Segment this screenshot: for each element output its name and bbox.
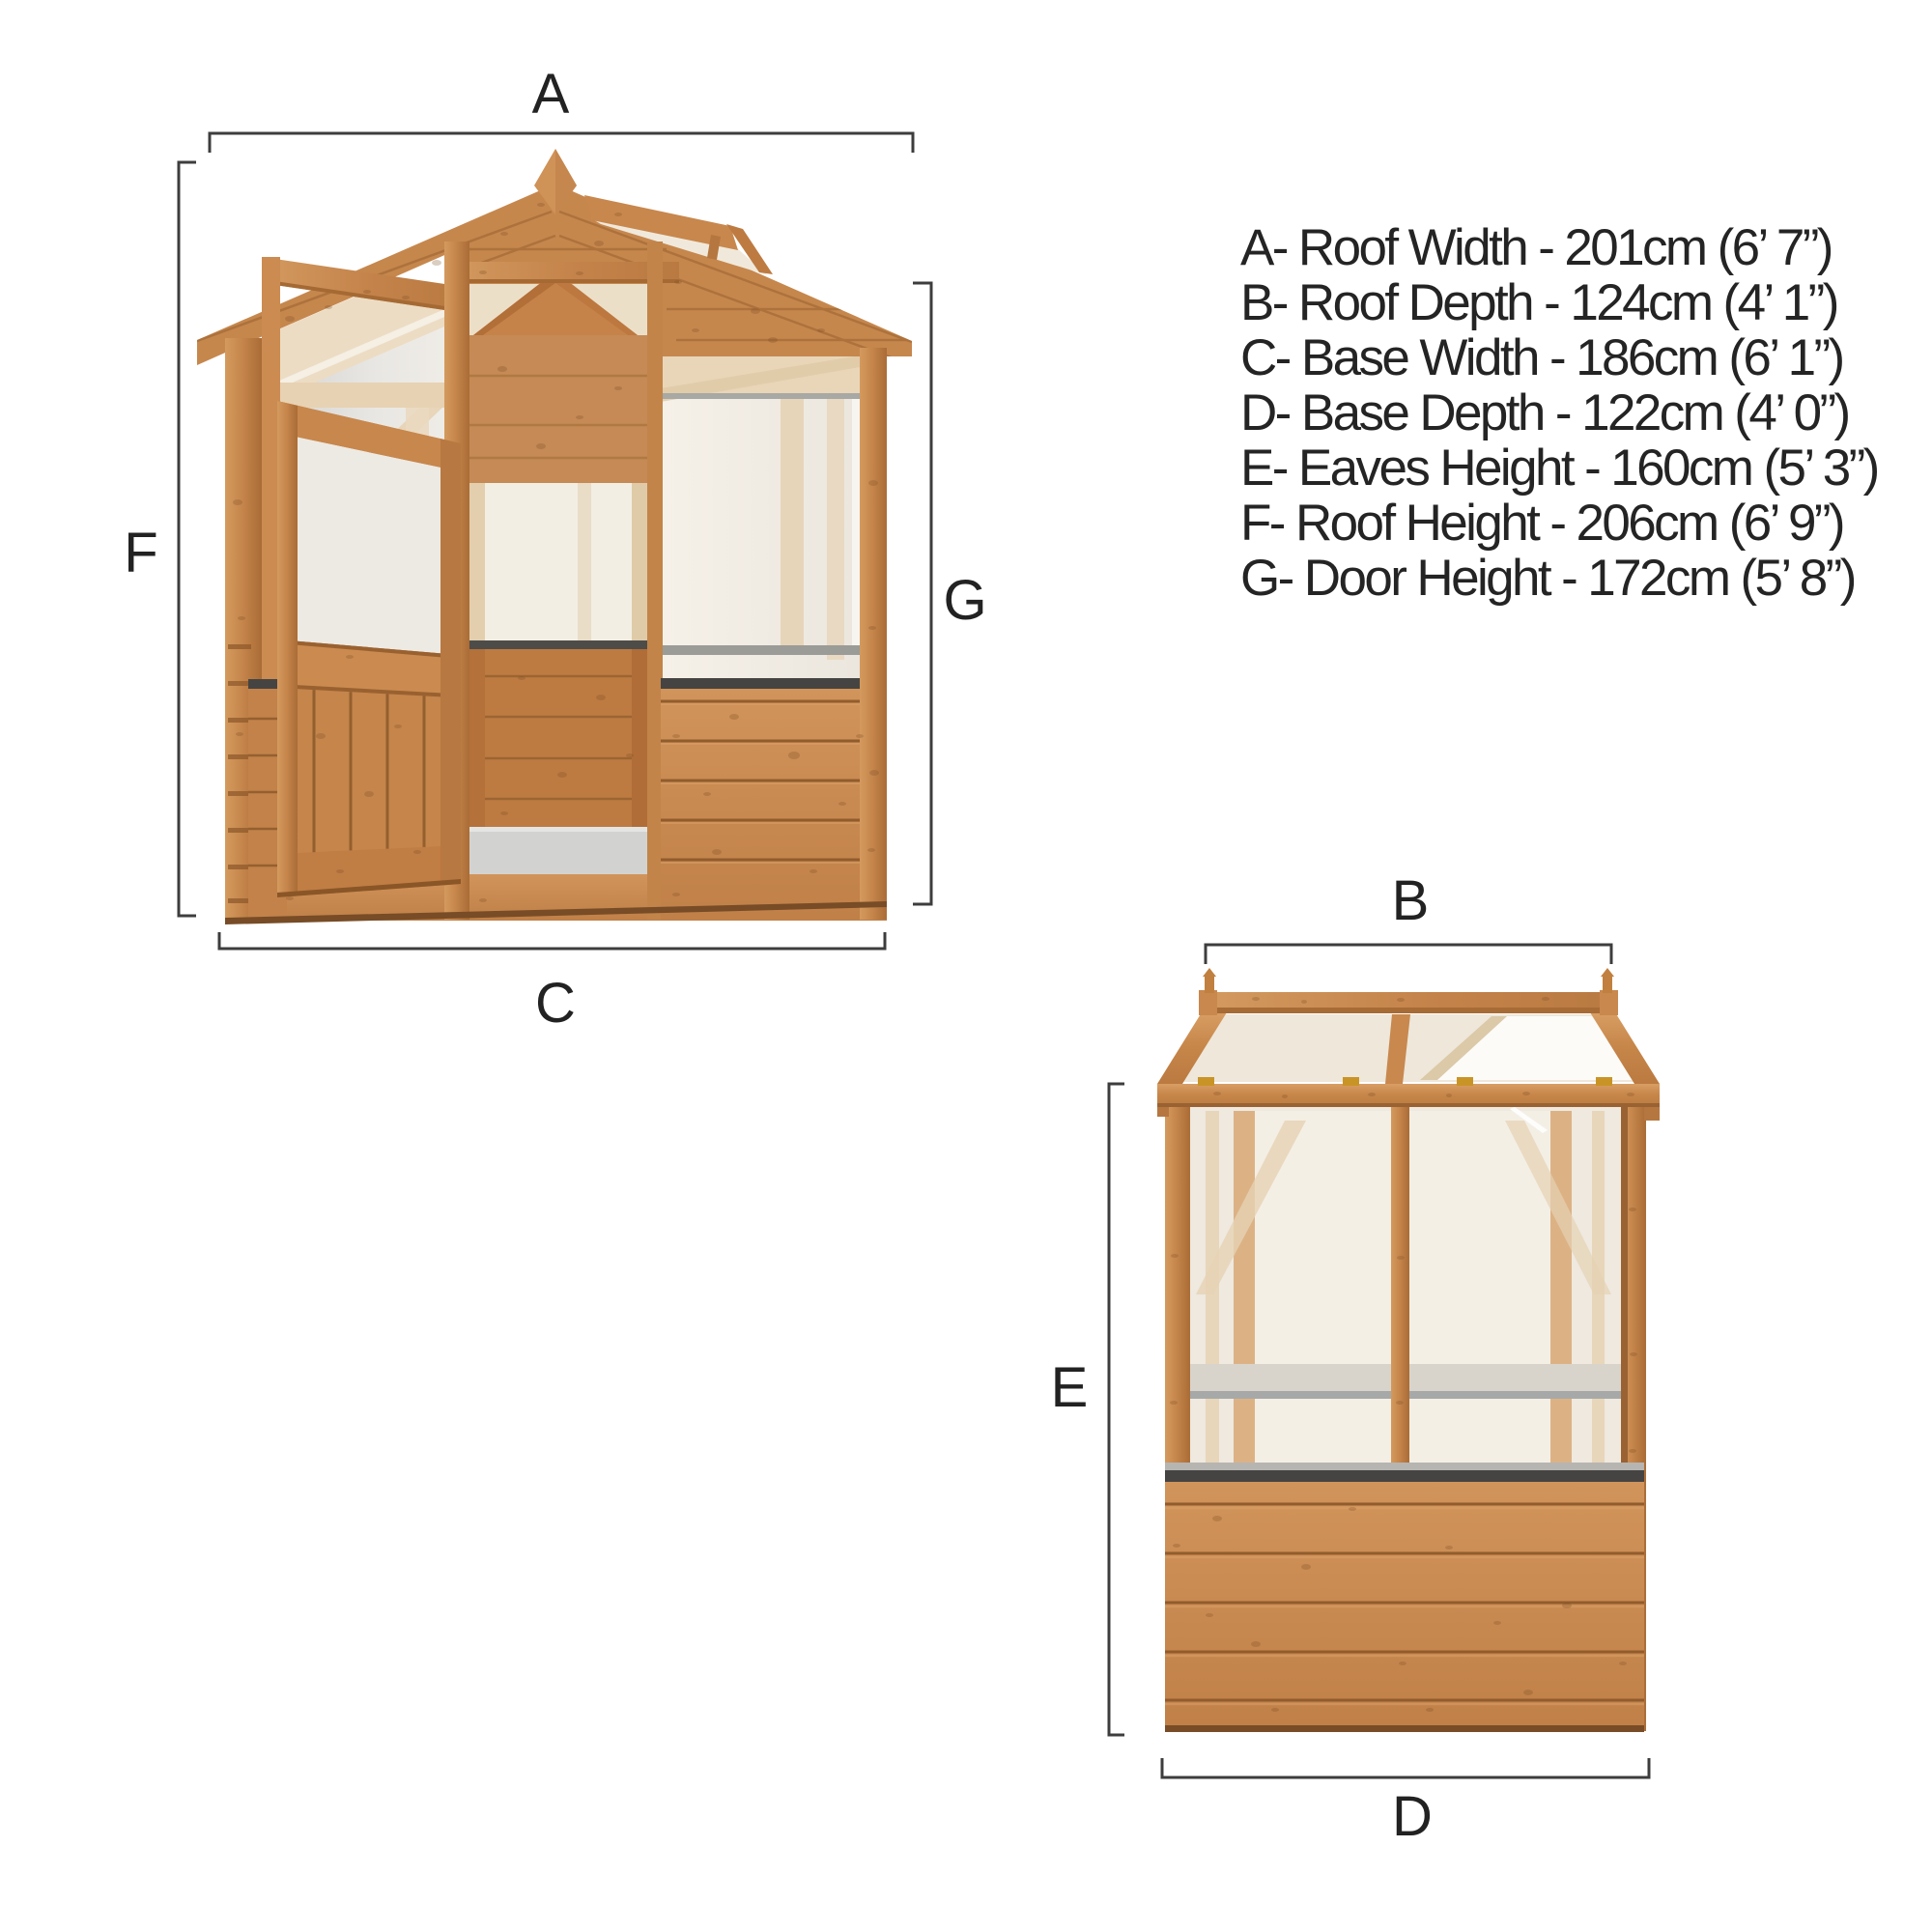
svg-text:D: D	[1392, 1785, 1433, 1848]
svg-text:F: F	[124, 522, 157, 584]
svg-text:G: G	[943, 569, 986, 632]
svg-text:G- Door Height - 172cm (5’ 8”): G- Door Height - 172cm (5’ 8”)	[1240, 550, 1855, 607]
svg-text:E: E	[1051, 1356, 1089, 1419]
svg-text:C- Base Width - 186cm (6’ 1”): C- Base Width - 186cm (6’ 1”)	[1240, 329, 1843, 386]
svg-text:B- Roof Depth - 124cm (4’ 1”): B- Roof Depth - 124cm (4’ 1”)	[1240, 274, 1837, 331]
svg-text:E- Eaves Height - 160cm (5’ 3”: E- Eaves Height - 160cm (5’ 3”)	[1240, 440, 1878, 497]
svg-text:C: C	[535, 972, 576, 1035]
svg-text:A- Roof Width - 201cm (6’ 7”): A- Roof Width - 201cm (6’ 7”)	[1240, 219, 1832, 276]
svg-text:D- Base Depth - 122cm (4’ 0”): D- Base Depth - 122cm (4’ 0”)	[1240, 384, 1849, 441]
svg-text:A: A	[532, 63, 570, 126]
svg-text:B: B	[1392, 869, 1430, 932]
svg-text:F- Roof Height - 206cm (6’ 9”): F- Roof Height - 206cm (6’ 9”)	[1240, 495, 1843, 552]
